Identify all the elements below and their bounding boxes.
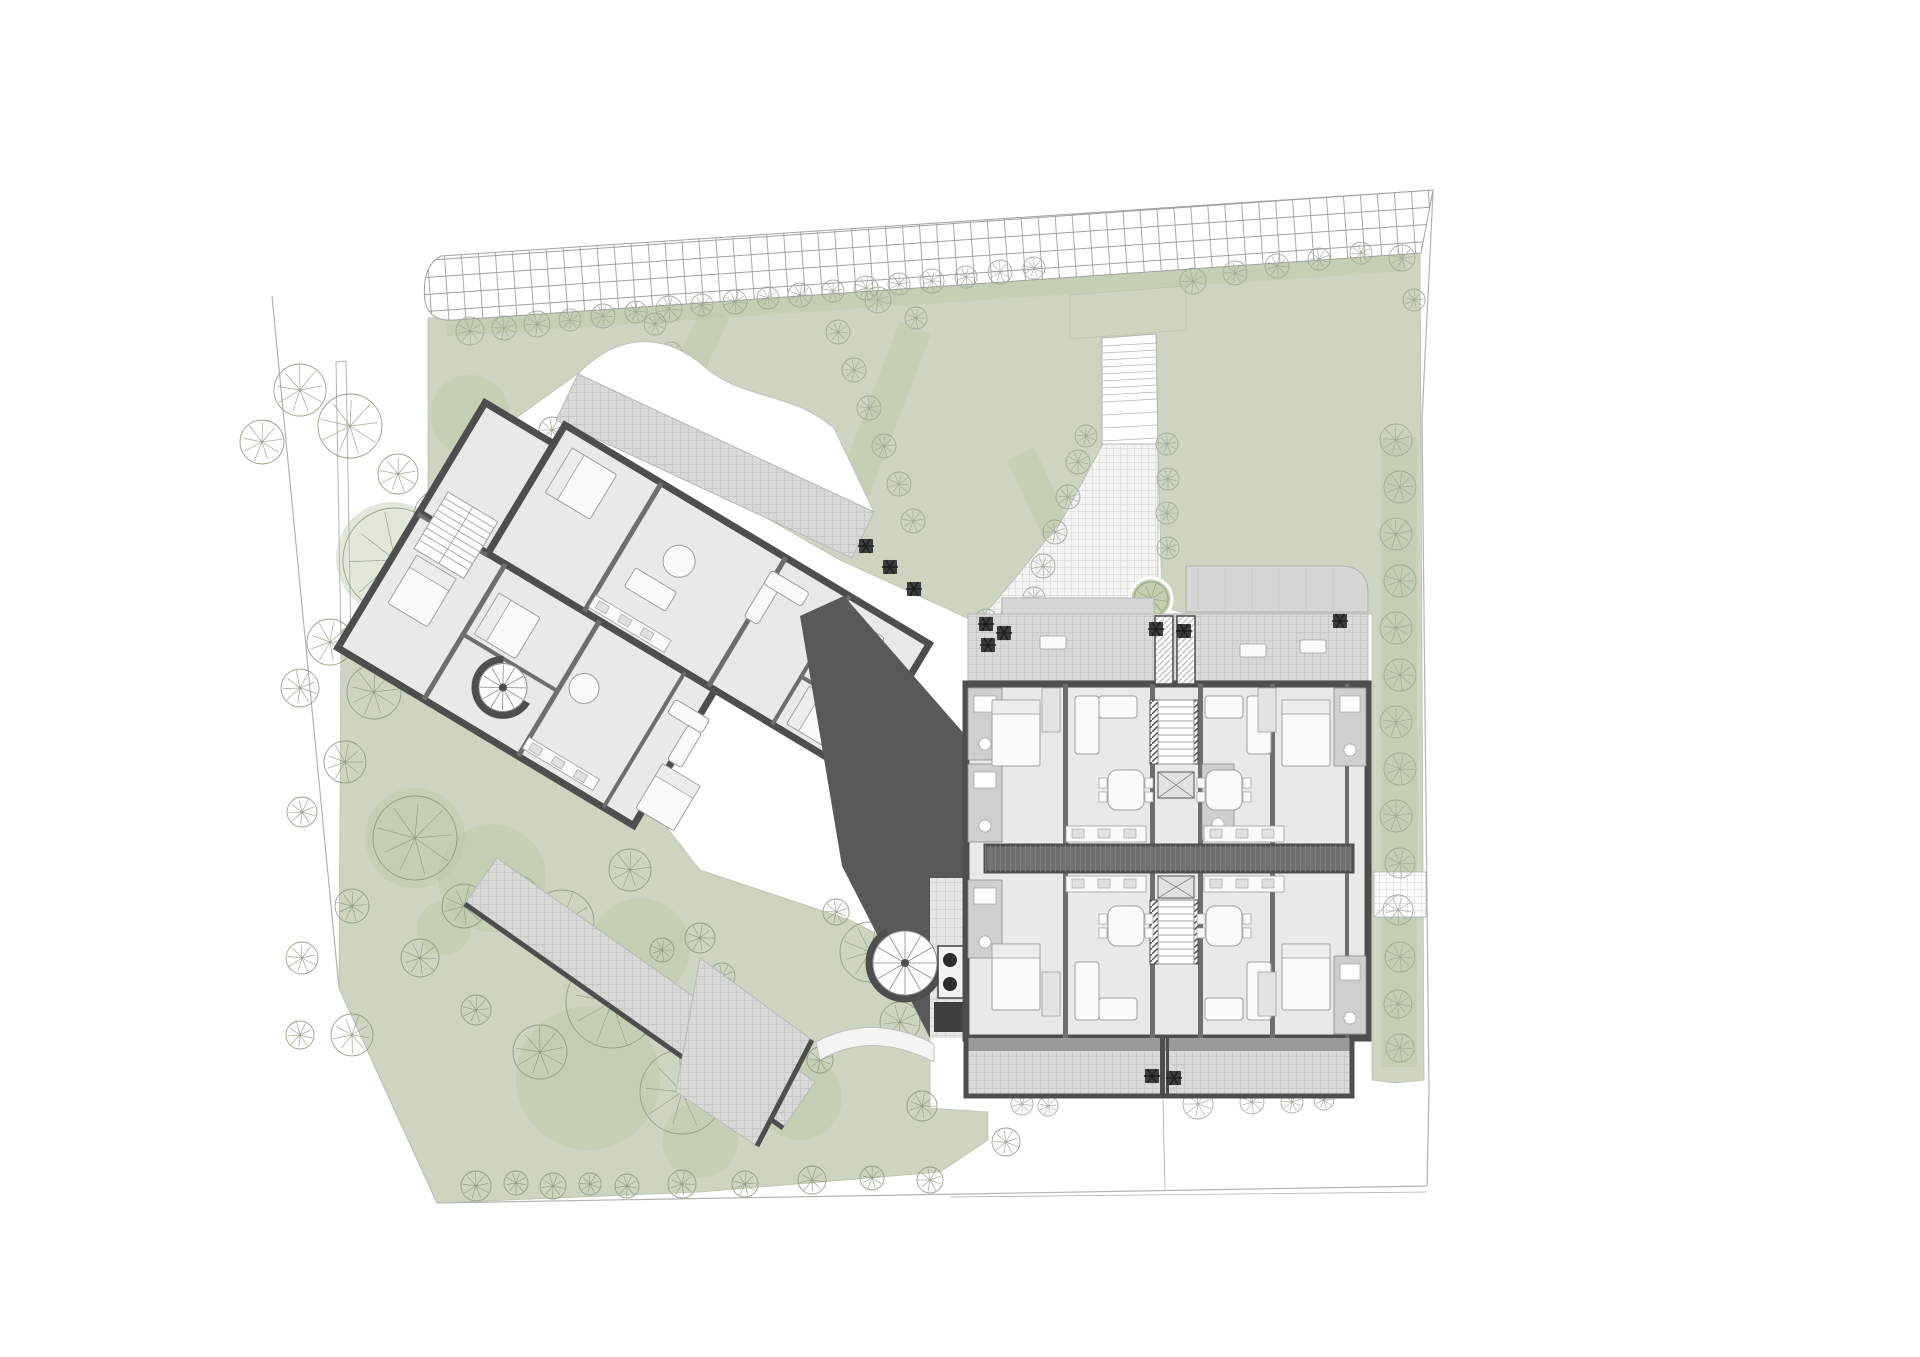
- chair: [1243, 778, 1251, 788]
- sofa: [1075, 962, 1099, 1020]
- chair: [1197, 792, 1205, 802]
- kitchen-appliance: [1098, 879, 1110, 888]
- wardrobe: [1258, 972, 1276, 1016]
- chair: [1099, 928, 1107, 938]
- planter: [1148, 622, 1164, 636]
- kitchen-appliance: [1210, 879, 1222, 888]
- wc-fixture: [1344, 1012, 1356, 1024]
- dining-table: [1206, 906, 1242, 946]
- sofa: [1205, 696, 1243, 718]
- chair: [1099, 914, 1107, 924]
- kitchen-appliance: [1236, 879, 1248, 888]
- planter: [1332, 614, 1348, 628]
- lounger: [1300, 640, 1326, 653]
- chair: [1099, 778, 1107, 788]
- bed: [992, 944, 1040, 1010]
- kitchen-appliance: [1072, 879, 1084, 888]
- kitchen-appliance: [1262, 879, 1274, 888]
- bed: [1282, 700, 1330, 766]
- terrace-shadow-strip: [966, 1038, 1352, 1051]
- bath-fixture: [1340, 696, 1360, 712]
- kitchen-appliance: [1098, 829, 1110, 838]
- planter: [858, 539, 874, 553]
- floor-plan-canvas: [0, 0, 1920, 1357]
- interior-wall: [1063, 684, 1068, 845]
- sofa: [1075, 696, 1099, 754]
- bath-fixture: [974, 888, 996, 904]
- corridor-hatch: [985, 845, 1353, 872]
- kitchen-burner: [943, 977, 957, 991]
- wc-fixture: [979, 936, 991, 948]
- chair: [1243, 928, 1251, 938]
- kitchen-appliance: [1262, 829, 1274, 838]
- planter: [1166, 1071, 1182, 1085]
- planting-bed: [1070, 286, 1186, 339]
- sofa: [1099, 998, 1137, 1020]
- chair: [1145, 792, 1153, 802]
- stepped-path: [1102, 334, 1158, 448]
- planter: [906, 582, 922, 596]
- bed: [1282, 944, 1330, 1010]
- planter: [1144, 1069, 1160, 1083]
- bath-fixture: [974, 772, 996, 788]
- interior-wall: [1063, 872, 1068, 1038]
- bath-fixture: [1340, 964, 1360, 980]
- kitchen-appliance: [1124, 829, 1136, 838]
- bed-pillow: [1282, 944, 1330, 958]
- wardrobe: [1042, 972, 1060, 1016]
- chair: [1197, 928, 1205, 938]
- core-stair: [1158, 900, 1194, 964]
- kitchen-appliance: [1124, 879, 1136, 888]
- chair: [1243, 792, 1251, 802]
- wc-fixture: [1344, 744, 1356, 756]
- terrace-divider: [1166, 1038, 1169, 1096]
- chair: [1197, 778, 1205, 788]
- planter: [882, 560, 898, 574]
- tree-branch: [475, 1172, 476, 1186]
- kitchen-appliance: [1236, 829, 1248, 838]
- bed-pillow: [992, 700, 1040, 714]
- chair: [1145, 914, 1153, 924]
- wardrobe: [1258, 688, 1276, 732]
- bed-pillow: [992, 944, 1040, 958]
- bed-pillow: [1282, 700, 1330, 714]
- chair: [1145, 928, 1153, 938]
- bed: [992, 700, 1040, 766]
- dining-table: [1108, 906, 1144, 946]
- kitchen-burner: [943, 953, 957, 967]
- sofa: [1205, 998, 1243, 1020]
- site-plan-page: [0, 0, 1920, 1357]
- terrace-divider: [1160, 1038, 1165, 1096]
- sofa: [1099, 696, 1137, 718]
- wc-fixture: [979, 738, 991, 750]
- lounger: [1240, 644, 1266, 657]
- dining-table: [1108, 770, 1144, 810]
- wc-fixture: [979, 820, 991, 832]
- chair: [1197, 914, 1205, 924]
- planter: [980, 638, 996, 652]
- chair: [1099, 792, 1107, 802]
- building-right: [966, 566, 1368, 1096]
- planter: [996, 626, 1012, 640]
- kitchen-appliance: [1072, 829, 1084, 838]
- planter: [1176, 624, 1192, 638]
- kitchen-appliance: [1210, 829, 1222, 838]
- chair: [1243, 914, 1251, 924]
- lounger: [1040, 636, 1066, 649]
- spiral-post: [901, 959, 909, 967]
- right-canopy-east: [1186, 566, 1368, 612]
- core-stair: [1158, 700, 1194, 764]
- chair: [1145, 778, 1153, 788]
- planter: [978, 617, 994, 631]
- dining-table: [1206, 770, 1242, 810]
- wardrobe: [1042, 688, 1060, 732]
- shaft-wall-hatch: [1150, 700, 1158, 764]
